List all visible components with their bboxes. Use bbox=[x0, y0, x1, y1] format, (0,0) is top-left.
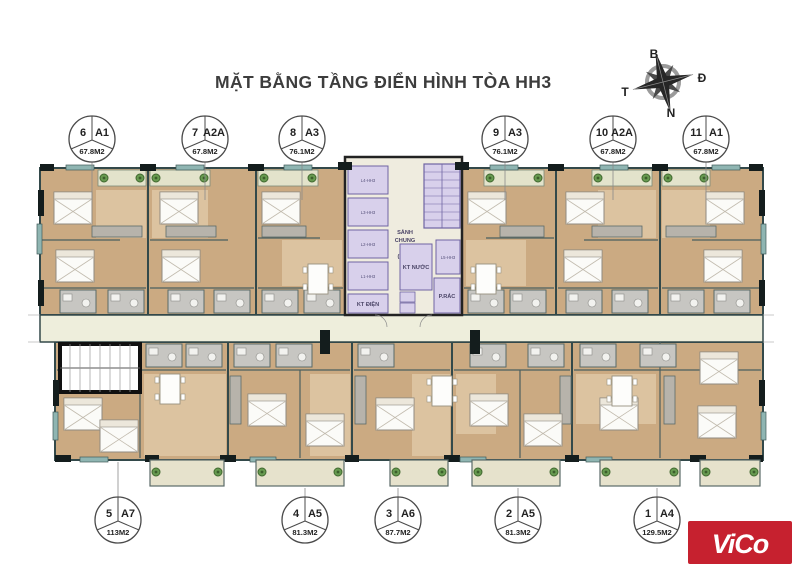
elevator-label: L4-HH3 bbox=[361, 178, 376, 183]
svg-text:6: 6 bbox=[80, 127, 86, 139]
svg-text:A5: A5 bbox=[521, 508, 535, 520]
svg-text:67.8M2: 67.8M2 bbox=[192, 147, 217, 156]
unit-label-2: 2 A5 81.3M2 bbox=[495, 497, 541, 543]
svg-text:A7: A7 bbox=[121, 508, 135, 520]
svg-text:87.7M2: 87.7M2 bbox=[385, 528, 410, 537]
unit-label-10: 10 A2A 67.8M2 bbox=[590, 116, 636, 162]
compass-south-label: N bbox=[667, 106, 676, 120]
elevator-label: L2-HH3 bbox=[361, 242, 376, 247]
vico-logo-text: ViCo bbox=[712, 529, 769, 559]
service-cell bbox=[400, 292, 415, 302]
service-cell bbox=[400, 303, 415, 313]
bottom-balconies bbox=[150, 460, 760, 486]
unit-label-5: 5 A7 113M2 bbox=[95, 497, 141, 543]
floor-plan-page: MẶT BẰNG TẦNG ĐIỂN HÌNH TÒA HH3 B Đ T N bbox=[0, 0, 800, 569]
building: L4-HH3 L3-HH3 L2-HH3 L1-HH3 KT ĐIỆN SẢNH… bbox=[28, 157, 774, 486]
central-corridor bbox=[40, 315, 763, 342]
svg-text:A2A: A2A bbox=[611, 127, 633, 139]
unit-label-4: 4 A5 81.3M2 bbox=[282, 497, 328, 543]
unit5-stairwell bbox=[60, 344, 140, 392]
svg-text:76.1M2: 76.1M2 bbox=[492, 147, 517, 156]
svg-text:67.8M2: 67.8M2 bbox=[693, 147, 718, 156]
svg-text:81.3M2: 81.3M2 bbox=[505, 528, 530, 537]
svg-text:A4: A4 bbox=[660, 508, 675, 520]
svg-text:CHUNG: CHUNG bbox=[395, 238, 416, 244]
svg-text:7: 7 bbox=[192, 127, 198, 139]
unit-label-7: 7 A2A 67.8M2 bbox=[182, 116, 228, 162]
vico-logo: ViCo bbox=[688, 521, 792, 564]
compass-rose: B Đ T N bbox=[621, 44, 706, 120]
elevator-label: L1-HH3 bbox=[361, 274, 376, 279]
svg-text:A5: A5 bbox=[308, 508, 322, 520]
p-rac-label: P.RÁC bbox=[439, 293, 456, 300]
svg-text:10: 10 bbox=[596, 127, 608, 139]
compass-west-label: T bbox=[621, 85, 629, 99]
svg-text:5: 5 bbox=[106, 508, 112, 520]
elevator-label: L5-HH3 bbox=[441, 255, 456, 260]
unit-label-9: 9 A3 76.1M2 bbox=[482, 116, 528, 162]
svg-text:1: 1 bbox=[645, 508, 651, 520]
svg-text:67.8M2: 67.8M2 bbox=[600, 147, 625, 156]
svg-text:A3: A3 bbox=[508, 127, 522, 139]
compass-east-label: Đ bbox=[698, 71, 707, 85]
unit-label-3: 3 A6 87.7M2 bbox=[375, 497, 421, 543]
svg-text:SẢNH: SẢNH bbox=[397, 229, 413, 236]
unit-label-6: 6 A1 67.8M2 bbox=[69, 116, 115, 162]
svg-text:67.8M2: 67.8M2 bbox=[79, 147, 104, 156]
svg-text:8: 8 bbox=[290, 127, 296, 139]
unit-labels-bottom: 5 A7 113M2 4 A5 81.3M2 3 A6 87.7M2 bbox=[95, 497, 680, 543]
svg-text:113M2: 113M2 bbox=[107, 528, 130, 537]
svg-text:4: 4 bbox=[293, 508, 300, 520]
svg-text:A1: A1 bbox=[95, 127, 109, 139]
unit-label-1: 1 A4 129.5M2 bbox=[634, 497, 680, 543]
unit-labels-top: 6 A1 67.8M2 7 A2A 67.8M2 8 A3 76.1M2 bbox=[69, 116, 729, 162]
svg-text:2: 2 bbox=[506, 508, 512, 520]
svg-text:A2A: A2A bbox=[203, 127, 225, 139]
elevator-label: L3-HH3 bbox=[361, 210, 376, 215]
svg-text:11: 11 bbox=[690, 127, 702, 139]
floor-plan-svg: MẶT BẰNG TẦNG ĐIỂN HÌNH TÒA HH3 B Đ T N bbox=[0, 0, 800, 569]
svg-text:A3: A3 bbox=[305, 127, 319, 139]
svg-text:A6: A6 bbox=[401, 508, 415, 520]
kt-dien-label: KT ĐIỆN bbox=[357, 300, 379, 308]
core: L4-HH3 L3-HH3 L2-HH3 L1-HH3 KT ĐIỆN SẢNH… bbox=[345, 157, 462, 327]
page-title: MẶT BẰNG TẦNG ĐIỂN HÌNH TÒA HH3 bbox=[215, 71, 551, 92]
unit-label-8: 8 A3 76.1M2 bbox=[279, 116, 325, 162]
core-stairwell bbox=[424, 164, 460, 228]
svg-text:A1: A1 bbox=[709, 127, 723, 139]
compass-north-label: B bbox=[650, 47, 659, 61]
kt-nuoc-label: KT NƯỚC bbox=[403, 263, 430, 271]
svg-text:76.1M2: 76.1M2 bbox=[289, 147, 314, 156]
svg-text:81.3M2: 81.3M2 bbox=[292, 528, 317, 537]
svg-text:129.5M2: 129.5M2 bbox=[642, 528, 672, 537]
svg-text:3: 3 bbox=[386, 508, 392, 520]
svg-text:9: 9 bbox=[493, 127, 499, 139]
unit-label-11: 11 A1 67.8M2 bbox=[683, 116, 729, 162]
